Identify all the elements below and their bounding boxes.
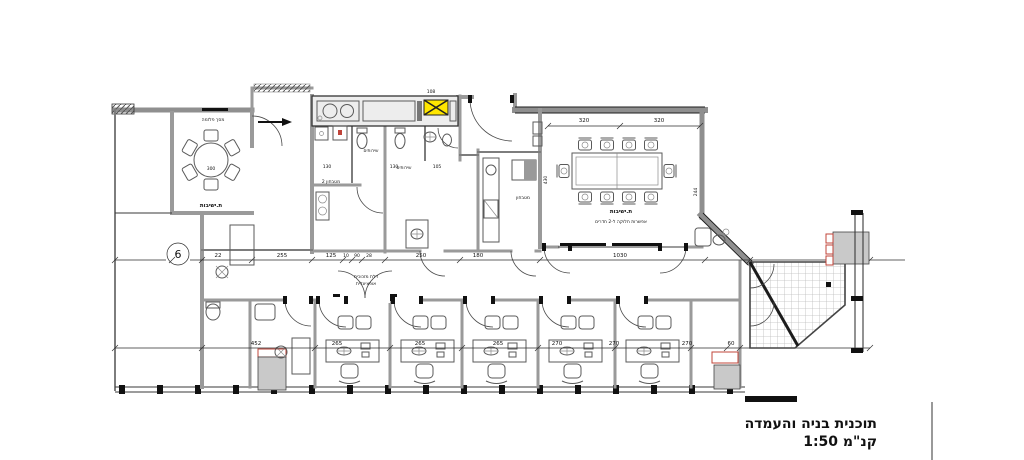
large-meeting-sublabel: אפשרות חלוקה ל-2 חדרים bbox=[595, 219, 647, 225]
dim-label: 22 bbox=[215, 253, 222, 259]
shaft-box bbox=[424, 100, 448, 115]
fixture bbox=[316, 192, 329, 220]
dim-label: 130 bbox=[390, 164, 399, 170]
dim-label: 265 bbox=[493, 341, 504, 347]
dim-label: 265 bbox=[332, 341, 343, 347]
toilets-label: שירותים bbox=[364, 149, 379, 154]
kitchenette-label: מטבחון bbox=[516, 196, 530, 201]
dim-label: 1030 bbox=[613, 253, 627, 259]
dim-label: 430 bbox=[543, 176, 549, 185]
dim-label: 320 bbox=[579, 118, 590, 124]
dim-label: 270 bbox=[682, 341, 693, 347]
dim-label: 125 bbox=[326, 253, 337, 259]
office-unit bbox=[463, 296, 526, 384]
drawing-scale: קנ"מ 1:50 bbox=[803, 434, 877, 450]
dim-label: 10 bbox=[343, 253, 349, 259]
dim-table: 300 bbox=[207, 166, 216, 172]
large-meeting-label: ת.ישיבות bbox=[610, 209, 632, 215]
door-arc bbox=[252, 116, 282, 146]
small-meeting-room: מסך פלזמה 300 ת.ישיבות bbox=[182, 108, 292, 209]
office-unit bbox=[616, 296, 679, 384]
dim-label: 90 bbox=[354, 253, 360, 259]
meeting-chairs bbox=[182, 130, 241, 190]
small-meeting-label: ת.ישיבות bbox=[200, 203, 222, 209]
right-niche bbox=[712, 352, 740, 389]
service-desk bbox=[406, 220, 428, 248]
title-block: תוכנית בניה והעמדה קנ"מ 1:50 bbox=[745, 402, 932, 460]
dim-label: 244 bbox=[693, 188, 699, 197]
dim-label: 250 bbox=[416, 253, 427, 259]
kitchenette: מטבחון bbox=[483, 158, 536, 276]
dim-label: 320 bbox=[654, 118, 665, 124]
office-unit bbox=[316, 296, 379, 384]
dim-label: 28 bbox=[366, 253, 372, 259]
toilet bbox=[357, 128, 367, 149]
dim-label: 130 bbox=[323, 164, 332, 170]
dim-label: 105 bbox=[433, 164, 442, 170]
electrical-cabinet bbox=[833, 232, 869, 264]
dim-label: 452 bbox=[251, 341, 262, 347]
kitchenette2-label: מטבחון 2 bbox=[322, 179, 340, 185]
wc-sink bbox=[424, 132, 452, 146]
glass-door-label: דלת מזכוכית bbox=[354, 275, 379, 280]
dim-label: 270 bbox=[552, 341, 563, 347]
plasma-screen bbox=[202, 108, 228, 111]
equipment-cabinet bbox=[258, 357, 286, 390]
grid-marker-number: 6 bbox=[175, 248, 182, 261]
floor-plan-page: מסך פלזמה 300 ת.ישיבות 108 bbox=[0, 0, 1024, 460]
storefront-mullions bbox=[122, 385, 730, 394]
corridor-cabinet bbox=[216, 225, 254, 278]
side-seating bbox=[695, 228, 729, 246]
office-unit bbox=[391, 296, 454, 384]
services-block: 108 שירותים שירותים מטבחון 2 bbox=[312, 89, 514, 276]
toilet bbox=[395, 128, 405, 149]
plasma-label: מסך פלזמה bbox=[202, 118, 225, 123]
tiled-floor bbox=[750, 262, 845, 348]
floor-plan-canvas: מסך פלזמה 300 ת.ישיבות 108 bbox=[0, 0, 1024, 460]
sink-basin bbox=[486, 165, 496, 175]
wc-fixture bbox=[315, 127, 328, 140]
entry-door-arc bbox=[470, 99, 512, 141]
dim-label: 270 bbox=[609, 341, 620, 347]
dim-label: 265 bbox=[415, 341, 426, 347]
dim-label: 60 bbox=[728, 341, 735, 347]
dim-label: 255 bbox=[277, 253, 288, 259]
entrance-lobby bbox=[750, 210, 869, 353]
dim-shaft: 108 bbox=[427, 89, 436, 95]
drawing-title: תוכנית בניה והעמדה bbox=[745, 416, 877, 432]
toilets-label: שירותים bbox=[397, 166, 412, 171]
dim-label: 180 bbox=[473, 253, 484, 259]
office-unit bbox=[539, 296, 602, 384]
glass-door-label: אופציונלית bbox=[356, 282, 376, 287]
